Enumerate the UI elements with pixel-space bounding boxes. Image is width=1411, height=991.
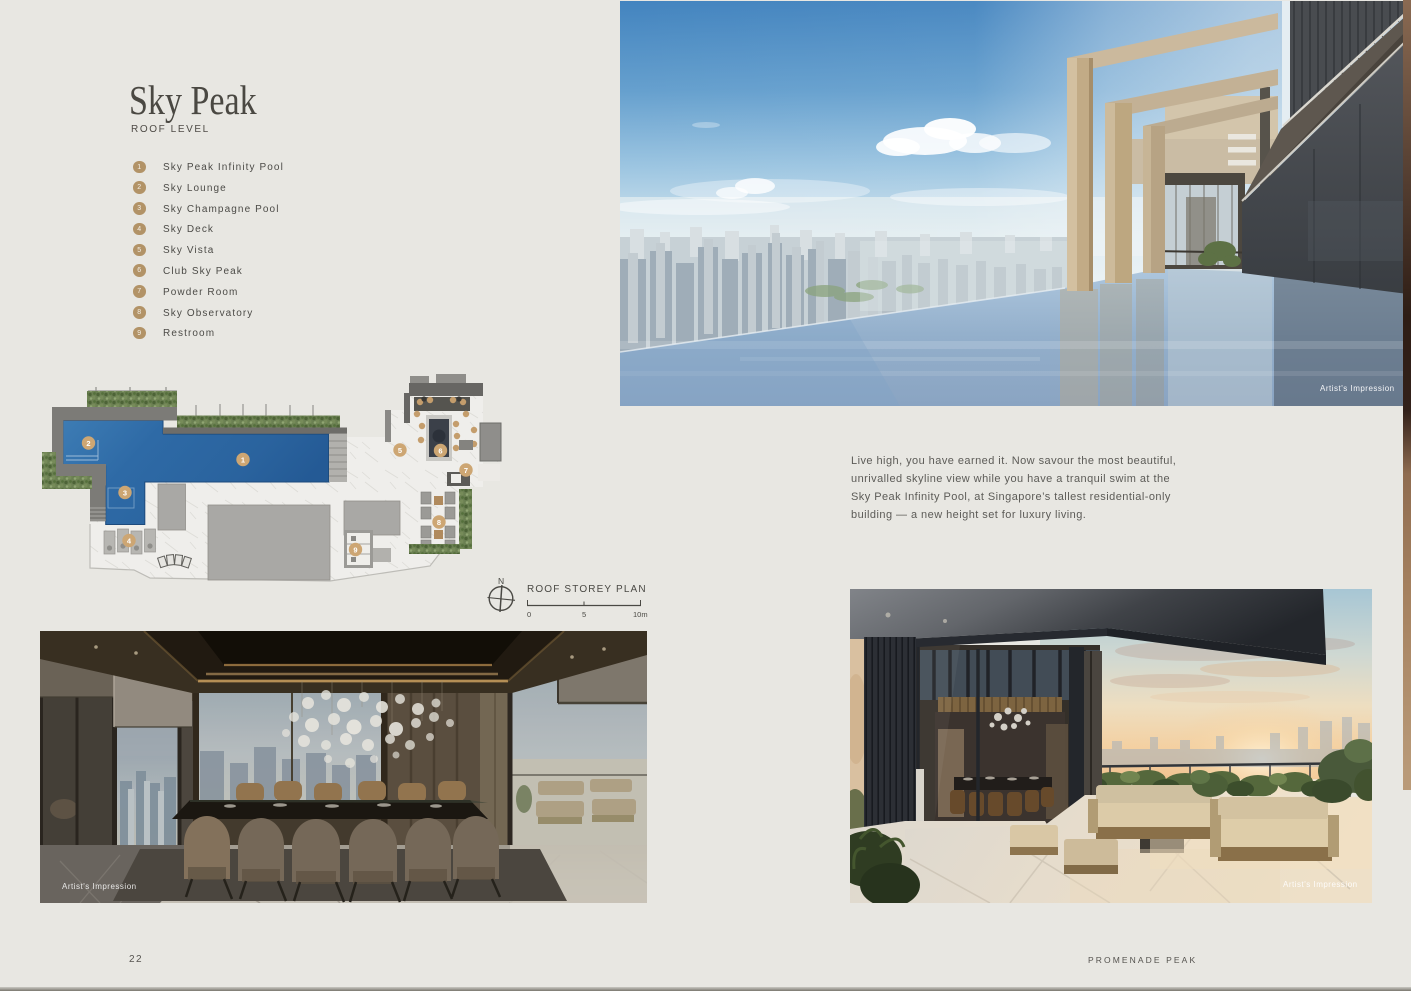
svg-text:6: 6 [438, 446, 442, 455]
svg-text:9: 9 [353, 545, 357, 554]
svg-text:0: 0 [527, 610, 531, 619]
svg-text:7: 7 [464, 466, 468, 475]
svg-text:10m: 10m [633, 610, 648, 619]
svg-text:1: 1 [241, 455, 245, 464]
svg-text:2: 2 [86, 439, 90, 448]
svg-text:Artist's Impression: Artist's Impression [1320, 384, 1395, 393]
svg-text:Artist's Impression: Artist's Impression [62, 882, 137, 891]
svg-text:8: 8 [437, 518, 441, 527]
svg-text:3: 3 [123, 488, 127, 497]
svg-text:Artist's Impression: Artist's Impression [1283, 880, 1358, 889]
svg-text:5: 5 [582, 610, 586, 619]
svg-text:5: 5 [398, 446, 402, 455]
